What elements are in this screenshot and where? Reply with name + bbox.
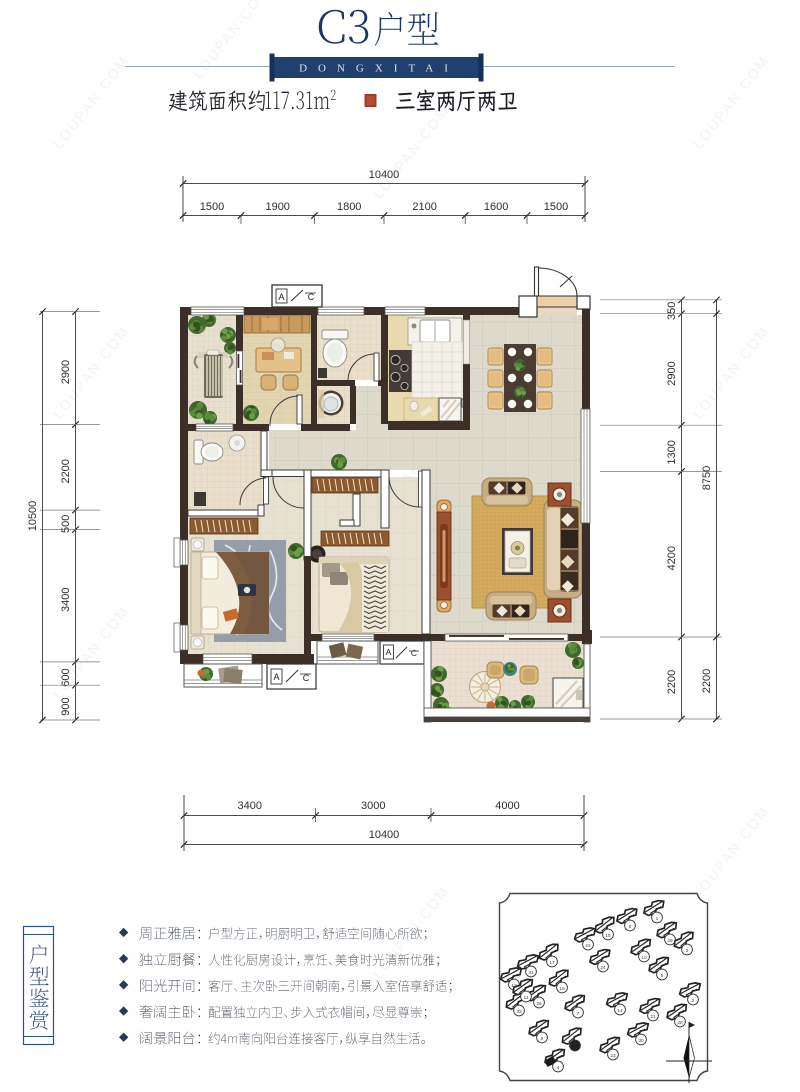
svg-text:7: 7 — [577, 1011, 580, 1017]
svg-text:A: A — [278, 292, 284, 302]
svg-text:1600: 1600 — [484, 201, 508, 213]
svg-text:22: 22 — [585, 943, 591, 949]
svg-text:5: 5 — [661, 973, 664, 979]
svg-text:600: 600 — [60, 668, 72, 686]
svg-text:23: 23 — [610, 1053, 616, 1059]
svg-text:1800: 1800 — [337, 201, 361, 213]
svg-text:8: 8 — [629, 924, 632, 930]
svg-text:2100: 2100 — [412, 201, 436, 213]
svg-text:LOUPAN·COM: LOUPAN·COM — [690, 52, 773, 152]
svg-text:10400: 10400 — [369, 829, 400, 841]
svg-text:500: 500 — [60, 515, 72, 533]
svg-text:28: 28 — [677, 1020, 683, 1026]
svg-text:350: 350 — [666, 302, 678, 320]
svg-text:14: 14 — [617, 1008, 623, 1014]
svg-text:8750: 8750 — [701, 466, 713, 490]
svg-text:4200: 4200 — [666, 546, 678, 570]
svg-text:21: 21 — [650, 1014, 656, 1020]
svg-text:LOUPAN·COM: LOUPAN·COM — [50, 52, 133, 152]
svg-text:C: C — [411, 648, 417, 658]
svg-text:1500: 1500 — [544, 201, 568, 213]
svg-text:2200: 2200 — [701, 669, 713, 693]
svg-text:11: 11 — [524, 995, 529, 1001]
svg-text:4: 4 — [557, 1065, 560, 1071]
svg-text:LOUPAN·COM: LOUPAN·COM — [370, 882, 453, 982]
svg-text:LOUPAN·COM: LOUPAN·COM — [690, 802, 773, 902]
svg-text:31: 31 — [528, 970, 534, 976]
svg-text:9: 9 — [541, 1036, 544, 1042]
svg-text:3000: 3000 — [361, 800, 385, 812]
svg-text:LOUPAN·COM: LOUPAN·COM — [370, 102, 453, 202]
svg-text:26: 26 — [536, 1001, 542, 1007]
svg-text:3400: 3400 — [238, 800, 262, 812]
svg-text:4000: 4000 — [495, 800, 519, 812]
svg-text:1500: 1500 — [200, 201, 224, 213]
svg-text:900: 900 — [60, 697, 72, 715]
svg-text:1300: 1300 — [666, 440, 678, 464]
svg-text:15: 15 — [605, 933, 611, 939]
svg-text:A: A — [386, 647, 392, 657]
svg-text:2200: 2200 — [666, 670, 678, 694]
svg-text:1900: 1900 — [265, 201, 289, 213]
svg-text:LOUPAN·COM: LOUPAN·COM — [690, 322, 773, 422]
svg-text:2: 2 — [692, 998, 695, 1004]
svg-text:10500: 10500 — [27, 501, 39, 532]
svg-text:C: C — [303, 673, 310, 683]
svg-text:10400: 10400 — [369, 169, 400, 181]
svg-text:3400: 3400 — [60, 588, 72, 612]
svg-text:2900: 2900 — [666, 361, 678, 385]
svg-text:2900: 2900 — [60, 360, 72, 384]
svg-text:33: 33 — [516, 1009, 522, 1015]
svg-text:DONGXITAI: DONGXITAI — [299, 63, 459, 75]
svg-text:LOUPAN·COM: LOUPAN·COM — [190, 0, 273, 82]
svg-text:29: 29 — [667, 938, 673, 944]
svg-text:30: 30 — [638, 1038, 644, 1044]
svg-text:19: 19 — [559, 986, 565, 992]
svg-text:A: A — [273, 672, 279, 682]
svg-text:24: 24 — [600, 965, 606, 971]
svg-text:17: 17 — [549, 960, 555, 966]
svg-text:2200: 2200 — [60, 459, 72, 483]
svg-text:3: 3 — [686, 948, 689, 954]
svg-text:1: 1 — [656, 916, 659, 922]
svg-text:C: C — [308, 292, 315, 302]
svg-text:10: 10 — [641, 955, 647, 961]
